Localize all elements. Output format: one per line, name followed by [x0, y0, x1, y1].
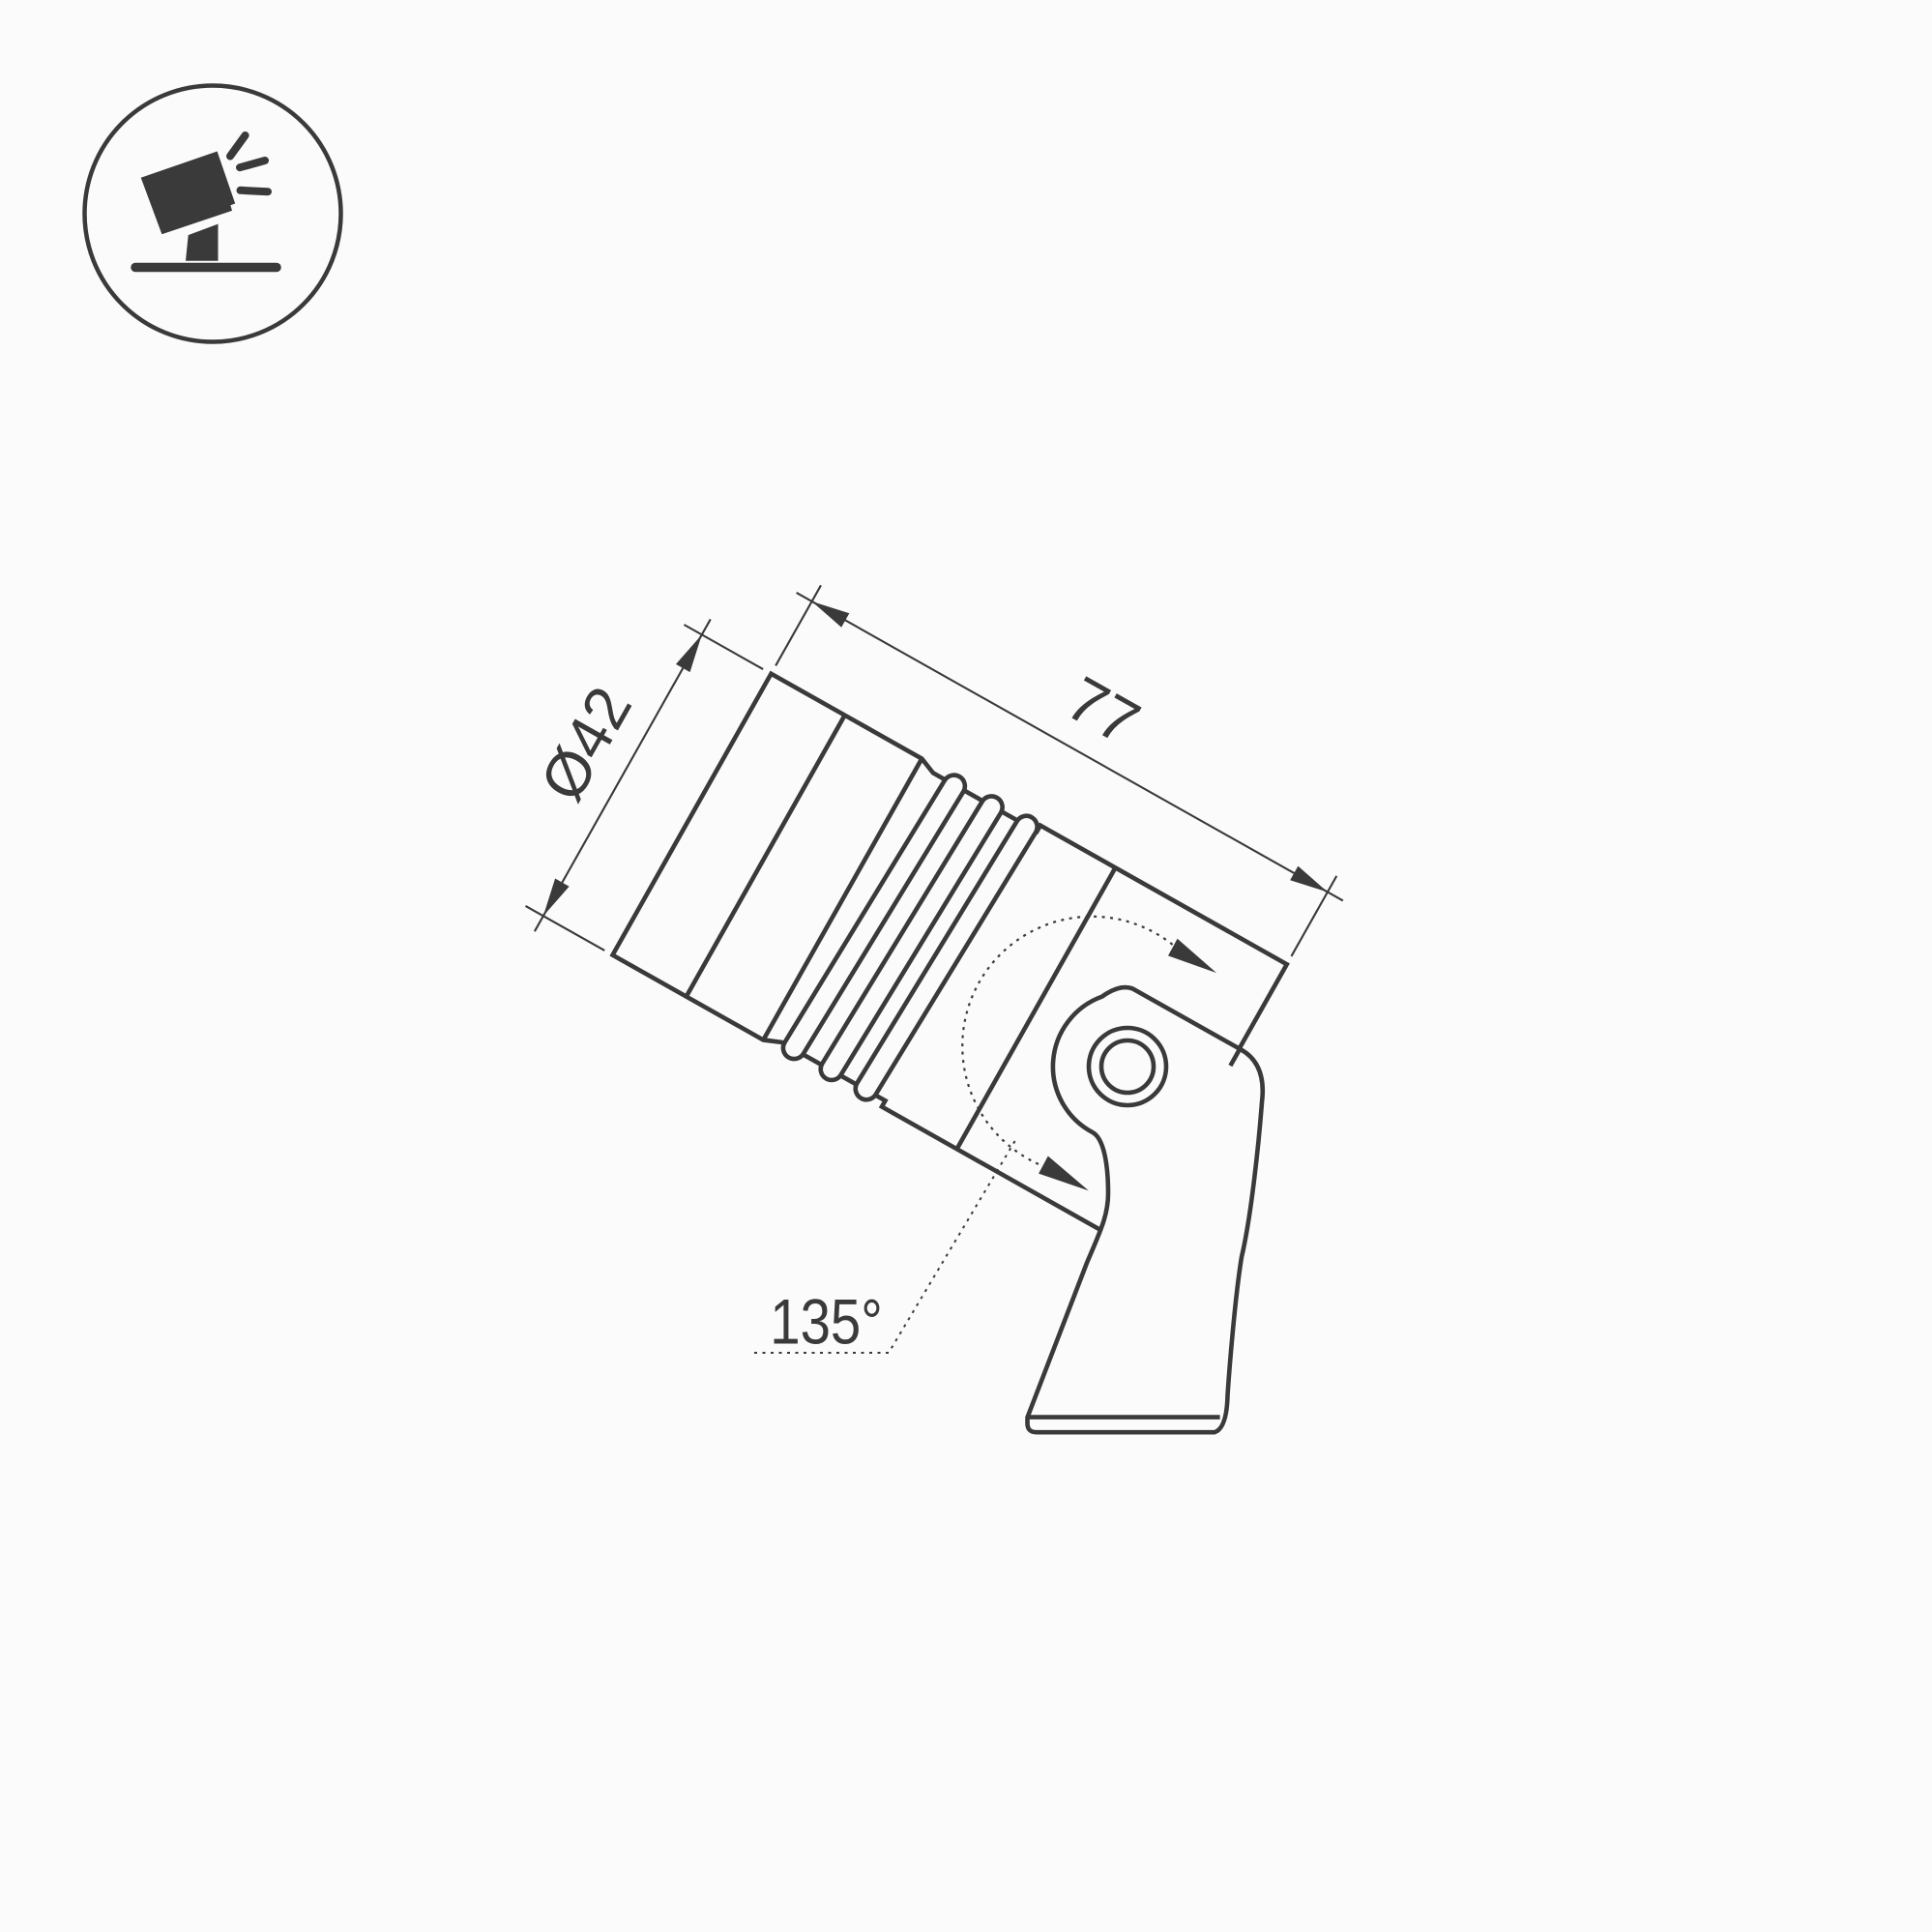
- svg-text:135°: 135°: [770, 1286, 883, 1358]
